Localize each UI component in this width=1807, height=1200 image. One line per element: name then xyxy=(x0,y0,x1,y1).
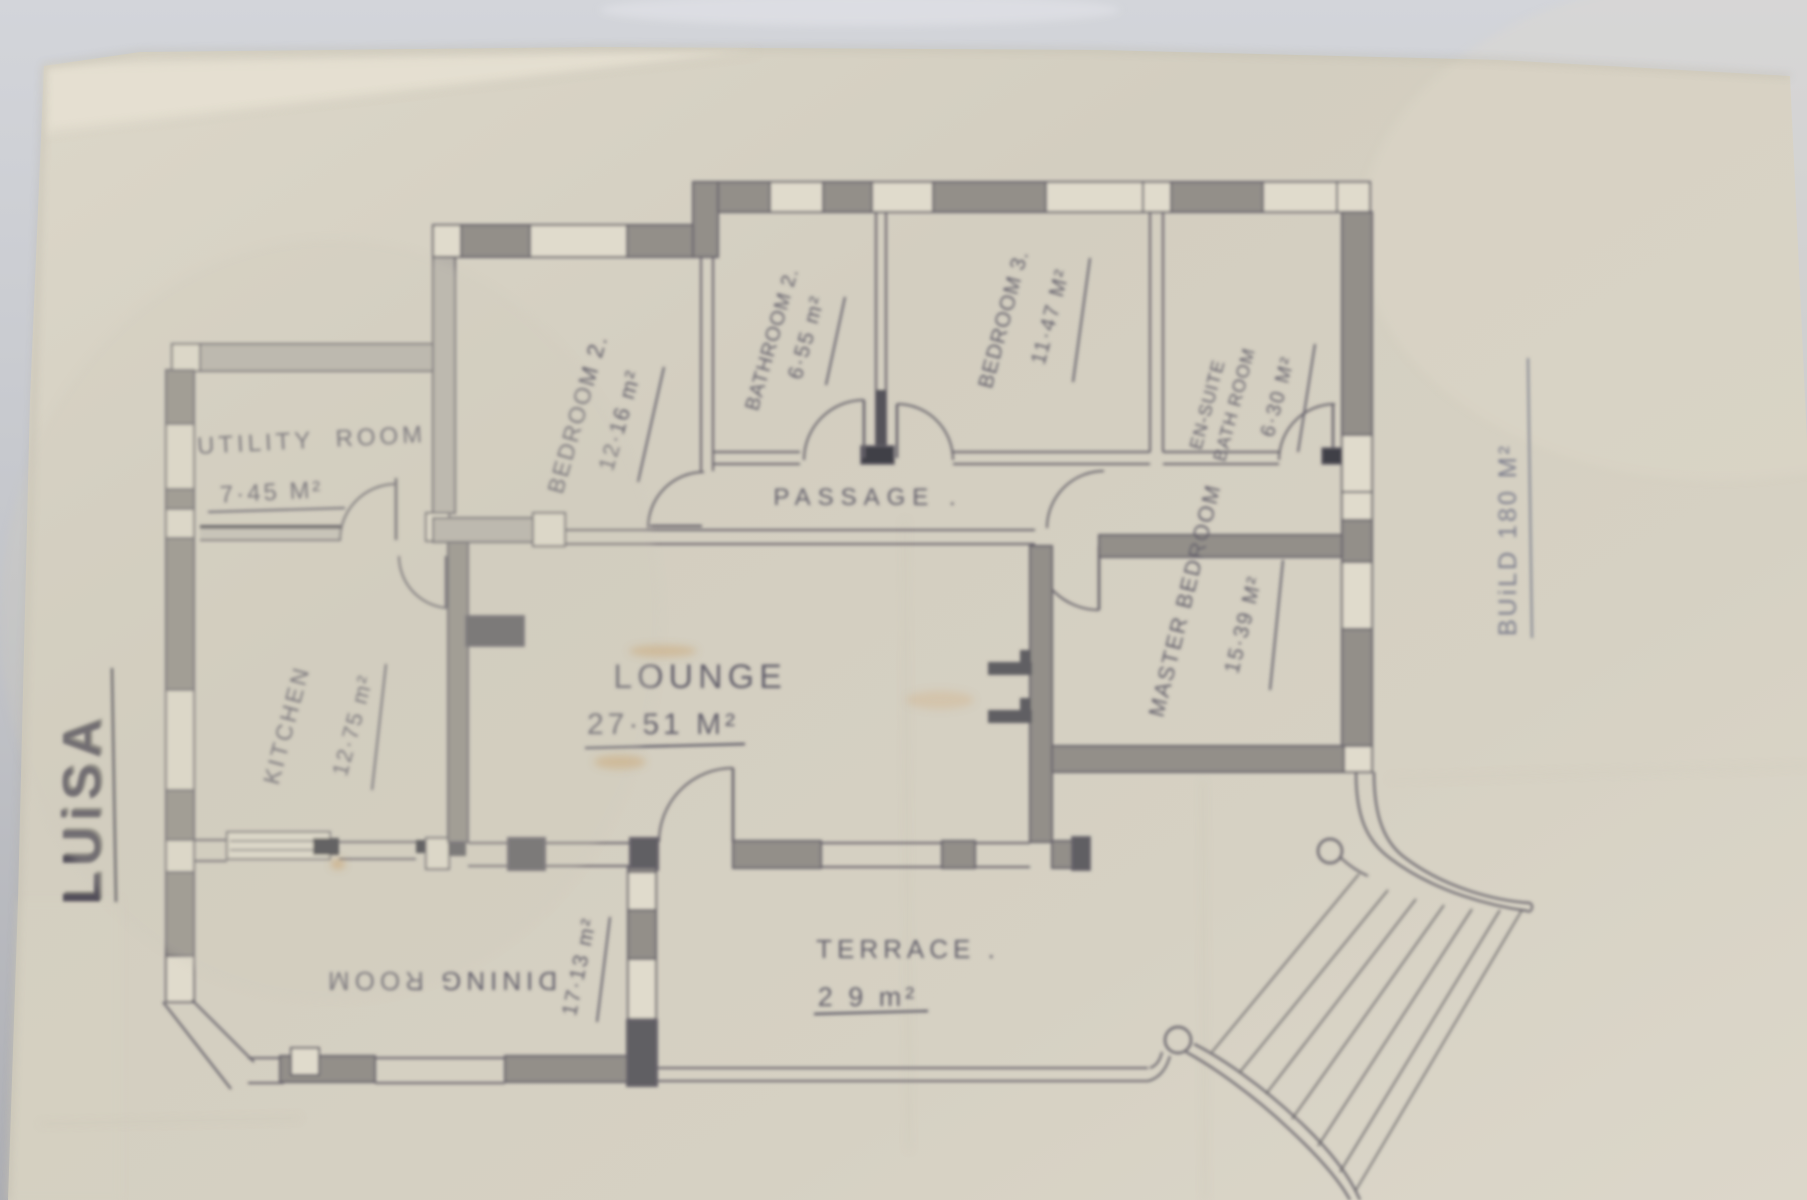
svg-text:PASSAGE .: PASSAGE . xyxy=(773,484,962,511)
svg-text:TERRACE .: TERRACE . xyxy=(816,934,1000,964)
svg-text:BUiLD 180 M²: BUiLD 180 M² xyxy=(1494,443,1522,636)
svg-text:2 9 m²: 2 9 m² xyxy=(818,982,919,1012)
